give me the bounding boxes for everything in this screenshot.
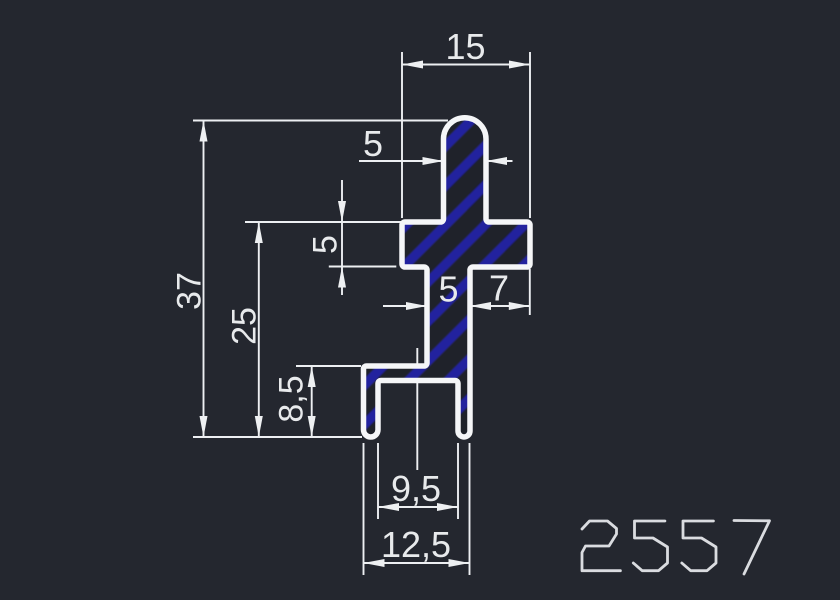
svg-text:5: 5 — [307, 235, 345, 254]
svg-text:7: 7 — [489, 268, 509, 309]
svg-text:8,5: 8,5 — [273, 375, 311, 422]
svg-text:37: 37 — [171, 272, 209, 310]
svg-text:25: 25 — [226, 307, 264, 345]
svg-text:12,5: 12,5 — [381, 524, 451, 565]
svg-text:5: 5 — [438, 269, 458, 310]
svg-text:5: 5 — [363, 123, 383, 164]
svg-text:9,5: 9,5 — [391, 468, 441, 509]
svg-text:15: 15 — [445, 26, 485, 67]
